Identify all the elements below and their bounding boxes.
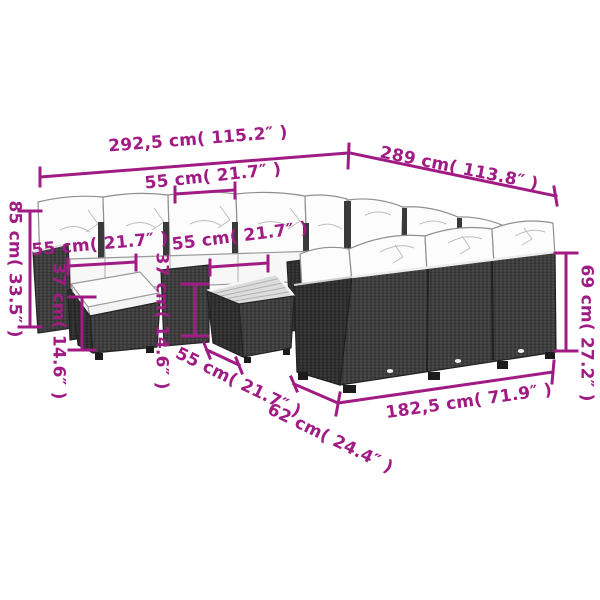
furniture-line-drawing [0,0,600,600]
dimension-diagram: 292,5 cm( 115.2″ ) 289 cm( 113.8″ ) 55 c… [0,0,600,600]
footstool [71,272,160,360]
dim-label-left-back-height: 85 cm( 33.5″ ) [6,200,23,337]
dim-label-table-height: 37 cm( 14.6″ ) [153,252,170,389]
dim-label-right-back-height: 69 cm( 27.2″ ) [578,264,595,401]
coffee-table [207,274,294,363]
dim-line-right-back-height [555,253,577,351]
dim-label-stool-height: 37 cm( 14.6″ ) [50,262,67,399]
